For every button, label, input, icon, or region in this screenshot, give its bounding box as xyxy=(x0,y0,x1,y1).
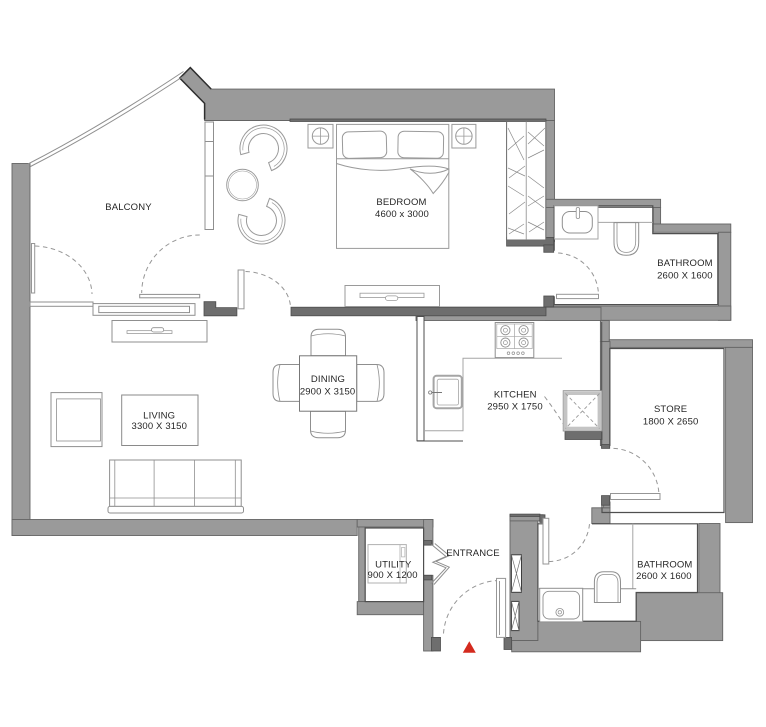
svg-text:KITCHEN2950 X 1750: KITCHEN2950 X 1750 xyxy=(487,390,543,413)
svg-text:ENTRANCE: ENTRANCE xyxy=(446,548,499,559)
svg-text:UTILITY900 X 1200: UTILITY900 X 1200 xyxy=(368,559,418,581)
svg-text:BEDROOM4600 x 3000: BEDROOM4600 x 3000 xyxy=(375,197,429,220)
svg-text:BALCONY: BALCONY xyxy=(105,202,152,213)
svg-text:BATHROOM2600 X 1600: BATHROOM2600 X 1600 xyxy=(657,258,713,281)
svg-text:BATHROOM2600 X 1600: BATHROOM2600 X 1600 xyxy=(636,559,692,582)
